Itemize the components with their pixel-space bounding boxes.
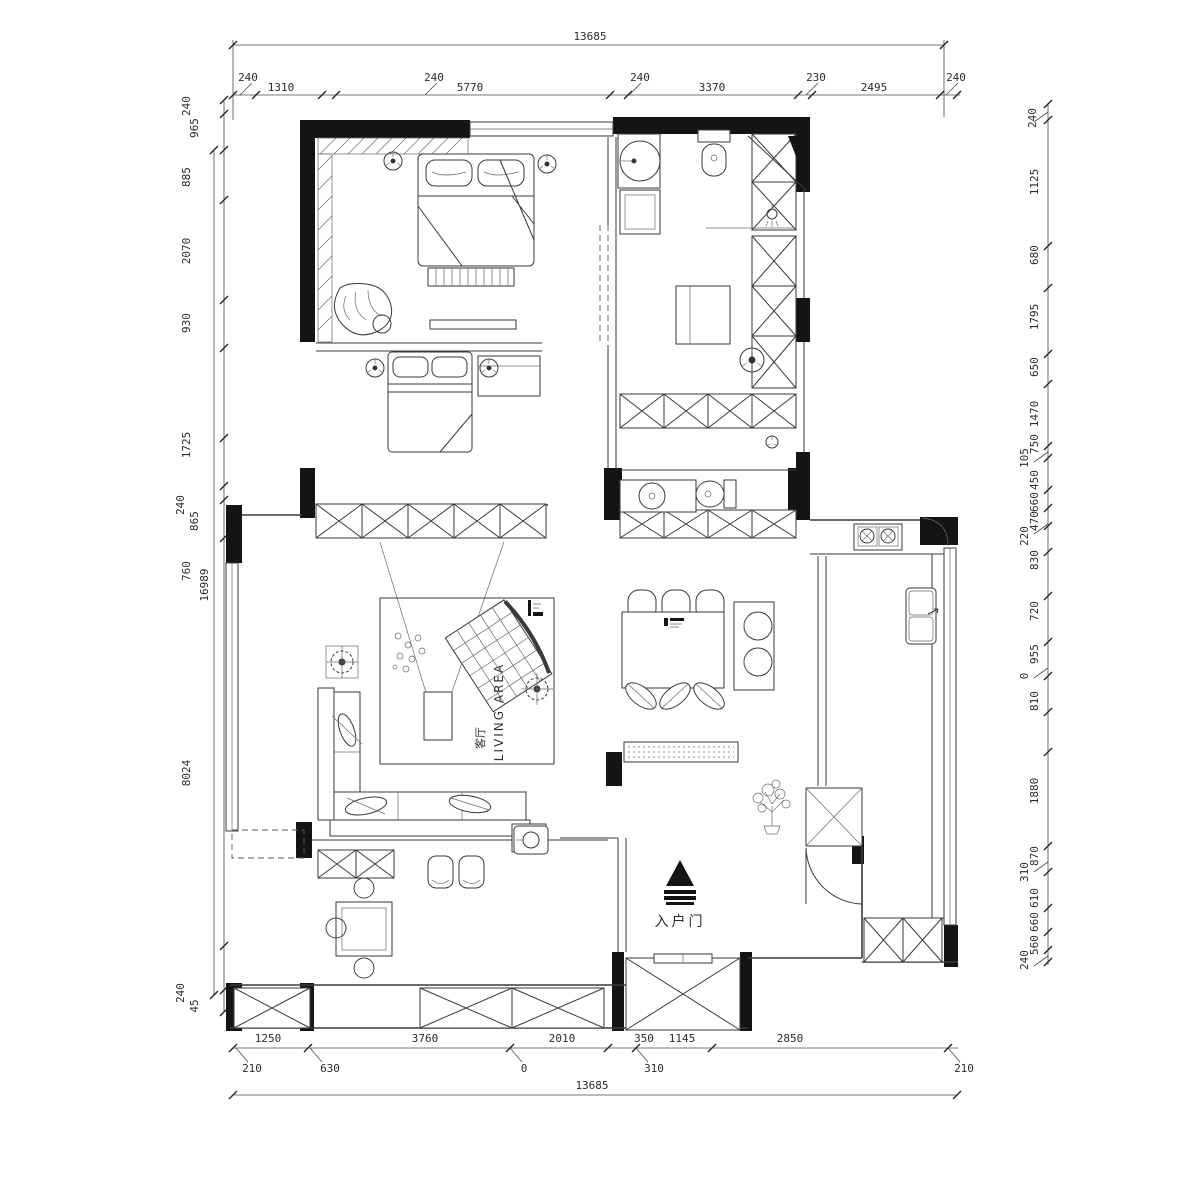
dim-top-2: 240 (424, 71, 444, 84)
desk-area (676, 286, 764, 372)
dim-bottom-5: 2850 (777, 1032, 804, 1045)
window-top-bedroom (470, 122, 613, 136)
bathroom-middle (620, 436, 778, 512)
logo-mark (528, 600, 543, 616)
guest-chair (428, 856, 453, 888)
dim-right-16: 810 (1028, 691, 1041, 711)
dim-right-21: 660 (1028, 912, 1041, 932)
balcony-rail-mid (420, 988, 604, 1028)
dim-right-9: 660 (1028, 492, 1041, 512)
dining-table (622, 612, 724, 688)
gas-stove (854, 524, 902, 550)
walls-thin (230, 137, 958, 1028)
refrigerator (806, 788, 862, 904)
dim-right-4: 650 (1028, 357, 1041, 377)
washing-machine (620, 190, 660, 234)
closet-top-right (752, 134, 796, 230)
dim-right-13: 720 (1028, 601, 1041, 621)
walls-solid (226, 117, 958, 1031)
dim-right-19: 310 (1018, 862, 1031, 882)
side-table (478, 356, 540, 396)
decor-dots (393, 633, 425, 672)
dim-bottom-total: 13685 (575, 1079, 608, 1092)
dim-top-8: 240 (946, 71, 966, 84)
living-room (318, 542, 555, 852)
lounge-chair (334, 284, 391, 335)
balcony-rail-left (234, 988, 310, 1028)
dim-right-17: 1880 (1028, 778, 1041, 805)
sprinkler-icon (538, 155, 556, 173)
media-wall-cabinet (316, 504, 546, 538)
dimension-chain-left: 240 965 885 2070 930 1725 240 865 760 80… (174, 96, 228, 1016)
window-left-living (226, 563, 238, 831)
dim-left-6: 865 (188, 511, 201, 531)
dim-right-8: 450 (1028, 470, 1041, 490)
dim-top-6: 230 (806, 71, 826, 84)
dim-top-7: 2495 (861, 81, 888, 94)
dim-left-9: 8024 (180, 759, 193, 786)
dim-left-5: 1725 (180, 432, 193, 459)
dim-right-12: 830 (1028, 550, 1041, 570)
dim-right-0: 240 (1026, 108, 1039, 128)
sprinkler-icon (366, 359, 384, 377)
floor-plan-drawing: 13685 240 1310 240 5770 240 3370 230 249… (0, 0, 1200, 1190)
dim-right-5: 1470 (1028, 401, 1041, 428)
dimension-chain-top: 13685 240 1310 240 5770 240 3370 230 249… (229, 30, 966, 120)
floor-stand (424, 692, 452, 740)
dim-bottom-1: 3760 (412, 1032, 439, 1045)
dimension-chain-bottom: 1250 3760 2010 350 1145 2850 210 630 0 3… (229, 1032, 974, 1099)
tall-cabinet-right (752, 236, 796, 388)
stool (354, 878, 374, 898)
dim-right-3: 1795 (1028, 304, 1041, 331)
dim-right-14: 955 (1028, 644, 1041, 664)
dim-left-3: 2070 (180, 238, 193, 265)
small-basin (514, 826, 548, 854)
toilet (698, 130, 730, 176)
bed-double (418, 154, 534, 266)
window-kitchen-right (944, 548, 956, 925)
dim-top-3: 5770 (457, 81, 484, 94)
dim-left-11: 45 (188, 999, 201, 1012)
kitchen-bottom-counter (864, 918, 942, 962)
dim-left-8: 760 (180, 561, 193, 581)
bed-single (388, 352, 472, 452)
dim-right-23: 240 (1018, 950, 1031, 970)
dim-left-total: 16989 (198, 568, 211, 601)
dim-top-total: 13685 (573, 30, 606, 43)
dim-top-5: 3370 (699, 81, 726, 94)
dim-left-1: 965 (188, 118, 201, 138)
desk (676, 286, 730, 344)
tea-room (326, 826, 548, 978)
dim-left-2: 885 (180, 167, 193, 187)
dim-top-1: 1310 (268, 81, 295, 94)
dim-bottom-leader-1: 630 (320, 1062, 340, 1075)
dim-bottom-3: 350 (634, 1032, 654, 1045)
dim-bottom-2: 2010 (549, 1032, 576, 1045)
dim-bottom-leader-0: 210 (242, 1062, 262, 1075)
dim-right-20: 610 (1028, 888, 1041, 908)
dim-right-11: 220 (1018, 526, 1031, 546)
dim-bottom-leader-2: 0 (521, 1062, 528, 1075)
dim-right-15: 0 (1018, 673, 1031, 680)
runner-rug (624, 742, 738, 762)
bed-bench (428, 268, 514, 286)
sprinkler-icon (384, 152, 402, 170)
entry: 入户门 (655, 860, 706, 930)
elevator-shaft (626, 954, 740, 1030)
hallway-wardrobe (620, 394, 796, 428)
bedroom-shelf (430, 320, 516, 329)
cabinets (234, 134, 942, 1028)
dim-right-1: 1125 (1028, 169, 1041, 196)
dim-bottom-4: 1145 (669, 1032, 696, 1045)
living-area-label: LIVING AREA (492, 663, 506, 761)
dim-right-7: 105 (1018, 448, 1031, 468)
kitchen (806, 518, 948, 904)
dim-top-4: 240 (630, 71, 650, 84)
bedroom-2 (366, 352, 540, 452)
dim-right-2: 680 (1028, 245, 1041, 265)
dining-area (621, 590, 790, 834)
guest-chair (459, 856, 484, 888)
stool (354, 958, 374, 978)
sprinkler-icon (766, 436, 778, 448)
dim-bottom-leader-3: 310 (644, 1062, 664, 1075)
round-chair (744, 612, 772, 640)
survey-target-icon (326, 646, 358, 678)
dim-bottom-leader-4: 210 (954, 1062, 974, 1075)
tea-table (336, 902, 392, 956)
dim-top-0: 240 (238, 71, 258, 84)
entry-marker-icon (664, 860, 696, 905)
dim-left-7: 240 (174, 495, 187, 515)
dim-bottom-0: 1250 (255, 1032, 282, 1045)
dim-left-10: 240 (174, 983, 187, 1003)
toilet (696, 480, 736, 508)
floor-plan-canvas: 13685 240 1310 240 5770 240 3370 230 249… (0, 0, 1200, 1190)
dimension-chain-right: 240 1125 680 1795 650 1470 750 105 450 6… (1018, 100, 1052, 970)
round-chair (744, 648, 772, 676)
shoe-cabinet (620, 510, 796, 538)
stool (373, 315, 391, 333)
dim-left-0: 240 (180, 96, 193, 116)
entry-door-label: 入户门 (655, 913, 706, 930)
potted-plant (753, 780, 790, 834)
living-area-label-cn: 客厅 (473, 727, 487, 749)
dim-left-4: 930 (180, 313, 193, 333)
kitchen-sink (906, 588, 938, 644)
tea-room-cabinet (318, 850, 394, 878)
master-bedroom (334, 152, 556, 335)
